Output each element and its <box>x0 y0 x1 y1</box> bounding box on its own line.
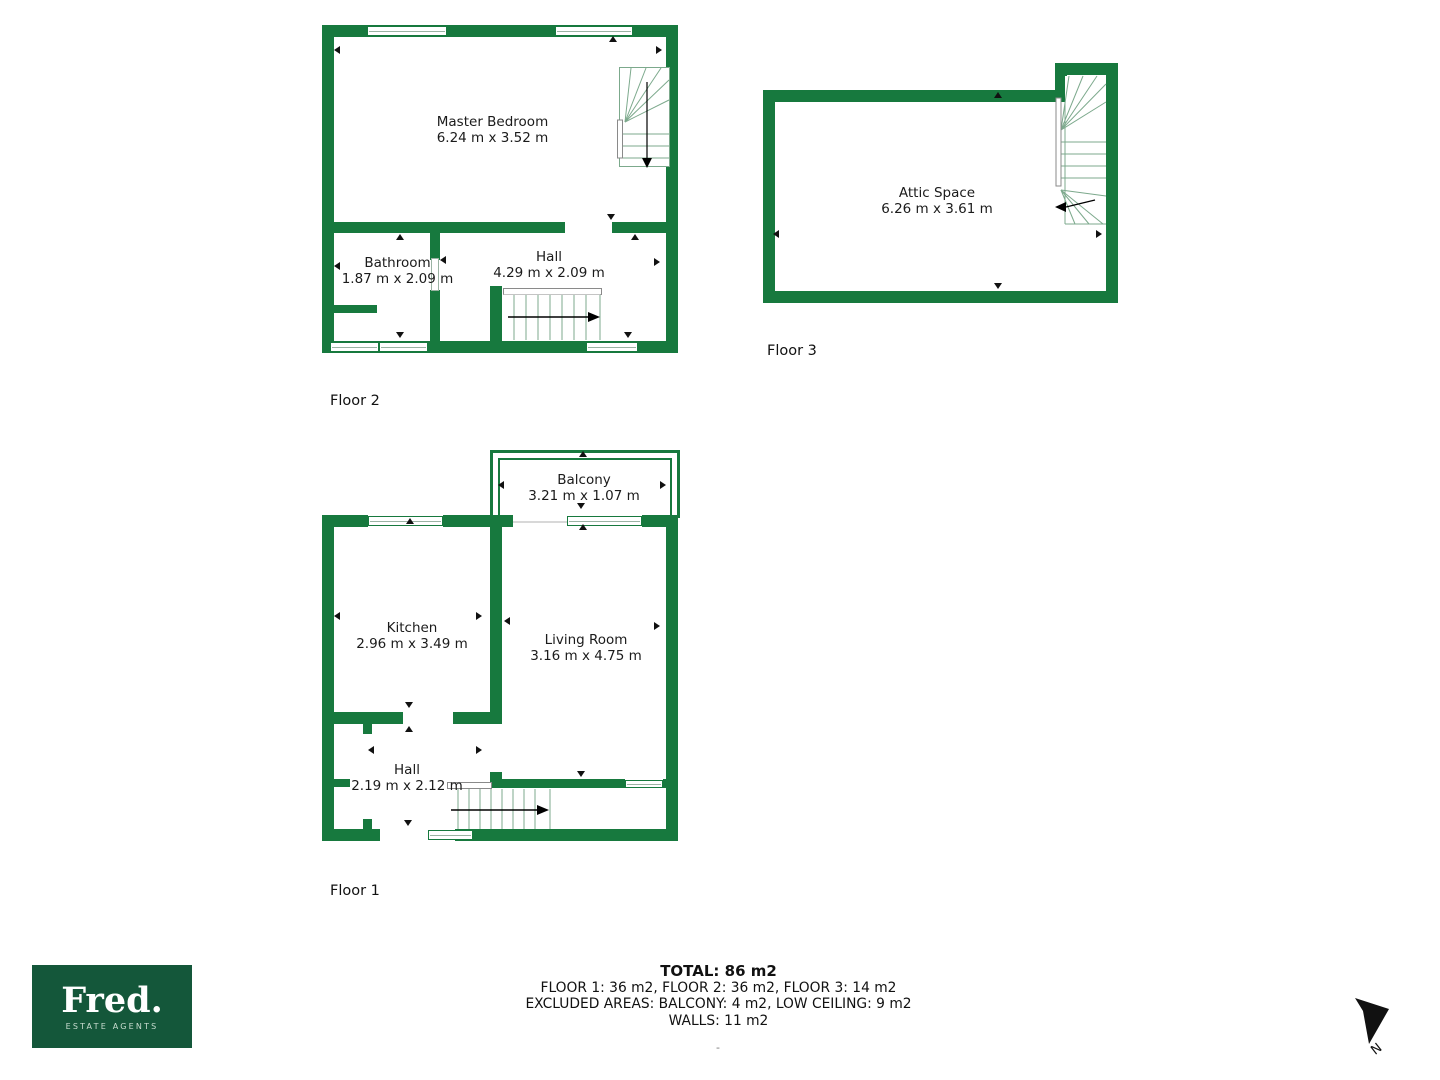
room-name: Bathroom <box>325 255 470 271</box>
summary-excluded: EXCLUDED AREAS: BALCONY: 4 m2, LOW CEILI… <box>400 996 1037 1013</box>
summary-walls: WALLS: 11 m2 <box>400 1013 1037 1030</box>
floor1-label: Floor 1 <box>330 883 380 899</box>
tick-icon <box>396 234 404 240</box>
room-label-master-bedroom: Master Bedroom 6.24 m x 3.52 m <box>360 114 625 146</box>
wall-segment <box>430 290 440 353</box>
room-name: Balcony <box>498 472 670 488</box>
tick-icon <box>504 617 510 625</box>
window <box>367 26 447 36</box>
tick-icon <box>624 332 632 338</box>
north-arrow-icon <box>1352 996 1392 1046</box>
room-label-bathroom: Bathroom 1.87 m x 2.09 m <box>325 255 470 287</box>
area-summary: TOTAL: 86 m2 FLOOR 1: 36 m2, FLOOR 2: 36… <box>400 963 1037 1029</box>
tick-icon <box>579 524 587 530</box>
room-label-kitchen: Kitchen 2.96 m x 3.49 m <box>328 620 496 652</box>
room-name: Hall <box>469 249 629 265</box>
room-dims: 1.87 m x 2.09 m <box>325 271 470 287</box>
wall-segment <box>455 829 678 841</box>
tick-icon <box>994 283 1002 289</box>
room-label-hall-floor2: Hall 4.29 m x 2.09 m <box>469 249 629 281</box>
room-name: Kitchen <box>328 620 496 636</box>
floor2-label: Floor 2 <box>330 393 380 409</box>
tick-icon <box>476 612 482 620</box>
tick-icon <box>1096 230 1102 238</box>
compass: N <box>1352 996 1400 1062</box>
stairs-icon <box>1053 74 1108 230</box>
wall-segment <box>322 305 377 313</box>
window <box>625 780 663 788</box>
wall-segment <box>363 819 372 841</box>
room-dims: 6.24 m x 3.52 m <box>360 130 625 146</box>
tick-icon <box>773 230 779 238</box>
tick-icon <box>654 622 660 630</box>
room-label-attic-space: Attic Space 6.26 m x 3.61 m <box>818 185 1056 217</box>
wall-segment <box>443 515 513 527</box>
room-dims: 4.29 m x 2.09 m <box>469 265 629 281</box>
wall-segment <box>612 222 678 233</box>
estate-agent-logo: Fred. ESTATE AGENTS <box>32 965 192 1048</box>
room-label-living-room: Living Room 3.16 m x 4.75 m <box>498 632 674 664</box>
tick-icon <box>334 46 340 54</box>
tick-icon <box>405 702 413 708</box>
tick-icon <box>406 518 414 524</box>
stairs-icon <box>617 66 672 168</box>
wall-segment <box>322 222 565 233</box>
room-dims: 6.26 m x 3.61 m <box>818 201 1056 217</box>
tick-icon <box>476 746 482 754</box>
footnote-dash: - <box>710 1041 726 1054</box>
window <box>379 342 428 352</box>
wall-segment <box>322 712 403 724</box>
window <box>330 342 379 352</box>
room-dims: 2.96 m x 3.49 m <box>328 636 496 652</box>
summary-total: TOTAL: 86 m2 <box>400 963 1037 980</box>
floor3-label: Floor 3 <box>767 343 817 359</box>
wall-segment <box>453 712 502 724</box>
room-label-hall-floor1: Hall 2.19 m x 2.12 m <box>328 762 486 794</box>
tick-icon <box>994 92 1002 98</box>
stairs-icon <box>502 286 604 341</box>
tick-icon <box>404 820 412 826</box>
tick-icon <box>654 258 660 266</box>
room-name: Hall <box>328 762 486 778</box>
tick-icon <box>579 451 587 457</box>
tick-icon <box>334 612 340 620</box>
wall-segment <box>763 90 775 303</box>
tick-icon <box>396 332 404 338</box>
tick-icon <box>609 36 617 42</box>
tick-icon <box>577 771 585 777</box>
logo-tagline: ESTATE AGENTS <box>66 1022 159 1031</box>
tick-icon <box>405 726 413 732</box>
room-label-balcony: Balcony 3.21 m x 1.07 m <box>498 472 670 504</box>
wall-segment <box>763 90 1067 102</box>
wall-segment <box>490 515 502 712</box>
wall-segment <box>322 25 334 353</box>
tick-icon <box>631 234 639 240</box>
room-dims: 3.16 m x 4.75 m <box>498 648 674 664</box>
room-name: Attic Space <box>818 185 1056 201</box>
room-dims: 3.21 m x 1.07 m <box>498 488 670 504</box>
room-name: Living Room <box>498 632 674 648</box>
room-dims: 2.19 m x 2.12 m <box>328 778 486 794</box>
wall-segment <box>666 515 678 841</box>
floorplan-canvas: Master Bedroom 6.24 m x 3.52 m Bathroom … <box>0 0 1440 1080</box>
logo-brand-text: Fred. <box>61 983 163 1019</box>
tick-icon <box>656 46 662 54</box>
window <box>586 342 638 352</box>
window <box>555 26 633 36</box>
tick-icon <box>607 214 615 220</box>
summary-floors: FLOOR 1: 36 m2, FLOOR 2: 36 m2, FLOOR 3:… <box>400 980 1037 997</box>
wall-segment <box>763 291 1118 303</box>
wall-segment <box>663 779 678 788</box>
window <box>428 830 473 840</box>
room-name: Master Bedroom <box>360 114 625 130</box>
tick-icon <box>368 746 374 754</box>
threshold-line <box>513 521 567 523</box>
wall-segment <box>363 724 372 734</box>
wall-segment <box>490 286 502 353</box>
